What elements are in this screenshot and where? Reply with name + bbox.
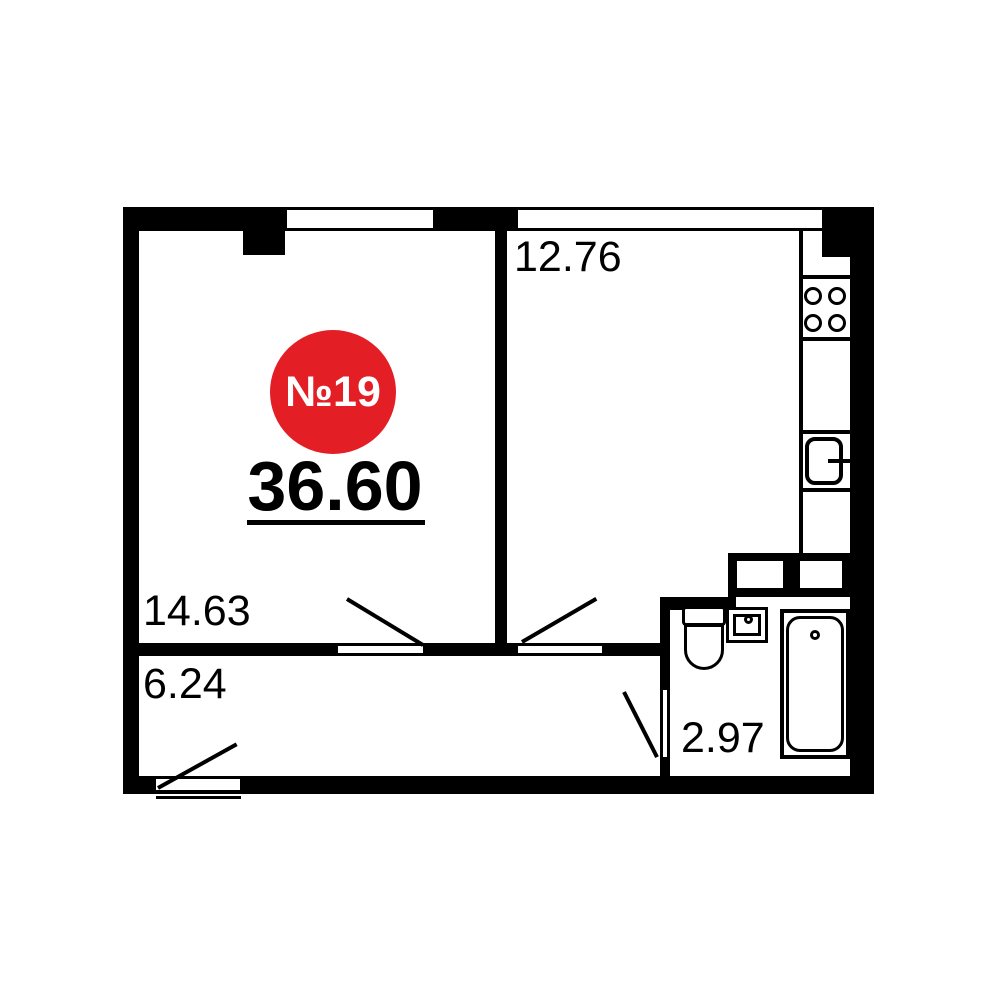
unit-number-badge: №19 <box>270 330 396 454</box>
counter-divider <box>803 275 850 279</box>
door-threshold-line <box>338 643 423 646</box>
door-swing-living-room <box>346 597 424 647</box>
total-area-label: 36.60 <box>240 451 430 521</box>
stove-burner <box>804 287 822 305</box>
floor-plan: №19 36.60 12.76 14.63 6.24 2.97 <box>0 0 1000 1000</box>
toilet-bowl <box>684 624 724 670</box>
door-threshold-line <box>667 690 670 757</box>
washbasin-tap-dot <box>744 615 753 624</box>
vent-shaft-left <box>737 561 783 588</box>
counter-divider <box>803 337 850 341</box>
room-area-label-hallway: 6.24 <box>143 663 227 706</box>
unit-number: №19 <box>285 371 381 414</box>
kitchen-sink-tap <box>828 459 850 463</box>
window-living-room <box>287 210 433 228</box>
door-threshold-line <box>156 790 240 794</box>
window-kitchen <box>518 210 822 228</box>
column-living-room <box>243 231 285 255</box>
door-threshold-line <box>518 643 602 646</box>
door-threshold-line <box>660 690 663 757</box>
pillar-top-right <box>822 207 874 257</box>
door-swing-kitchen <box>521 597 597 644</box>
stove-burner <box>804 314 822 332</box>
vent-shaft-right <box>800 561 842 588</box>
counter-divider <box>803 488 850 492</box>
counter-divider <box>803 430 850 434</box>
stove-burner <box>828 314 846 332</box>
door-threshold-line <box>338 653 423 656</box>
total-area-underline <box>247 520 425 525</box>
room-area-label-bathroom: 2.97 <box>681 717 765 760</box>
door-swing-bathroom <box>622 691 659 758</box>
stove-burner <box>828 287 846 305</box>
bathtub-drain <box>810 630 820 640</box>
entrance-outer-sill <box>156 796 241 799</box>
toilet-tank <box>682 606 726 626</box>
door-threshold-line <box>518 653 602 656</box>
partition-between-rooms <box>495 231 507 643</box>
outer-wall-right <box>850 207 874 794</box>
room-area-label-living: 14.63 <box>143 590 251 633</box>
room-area-label-kitchen: 12.76 <box>514 236 622 279</box>
outer-wall-left <box>123 207 139 794</box>
